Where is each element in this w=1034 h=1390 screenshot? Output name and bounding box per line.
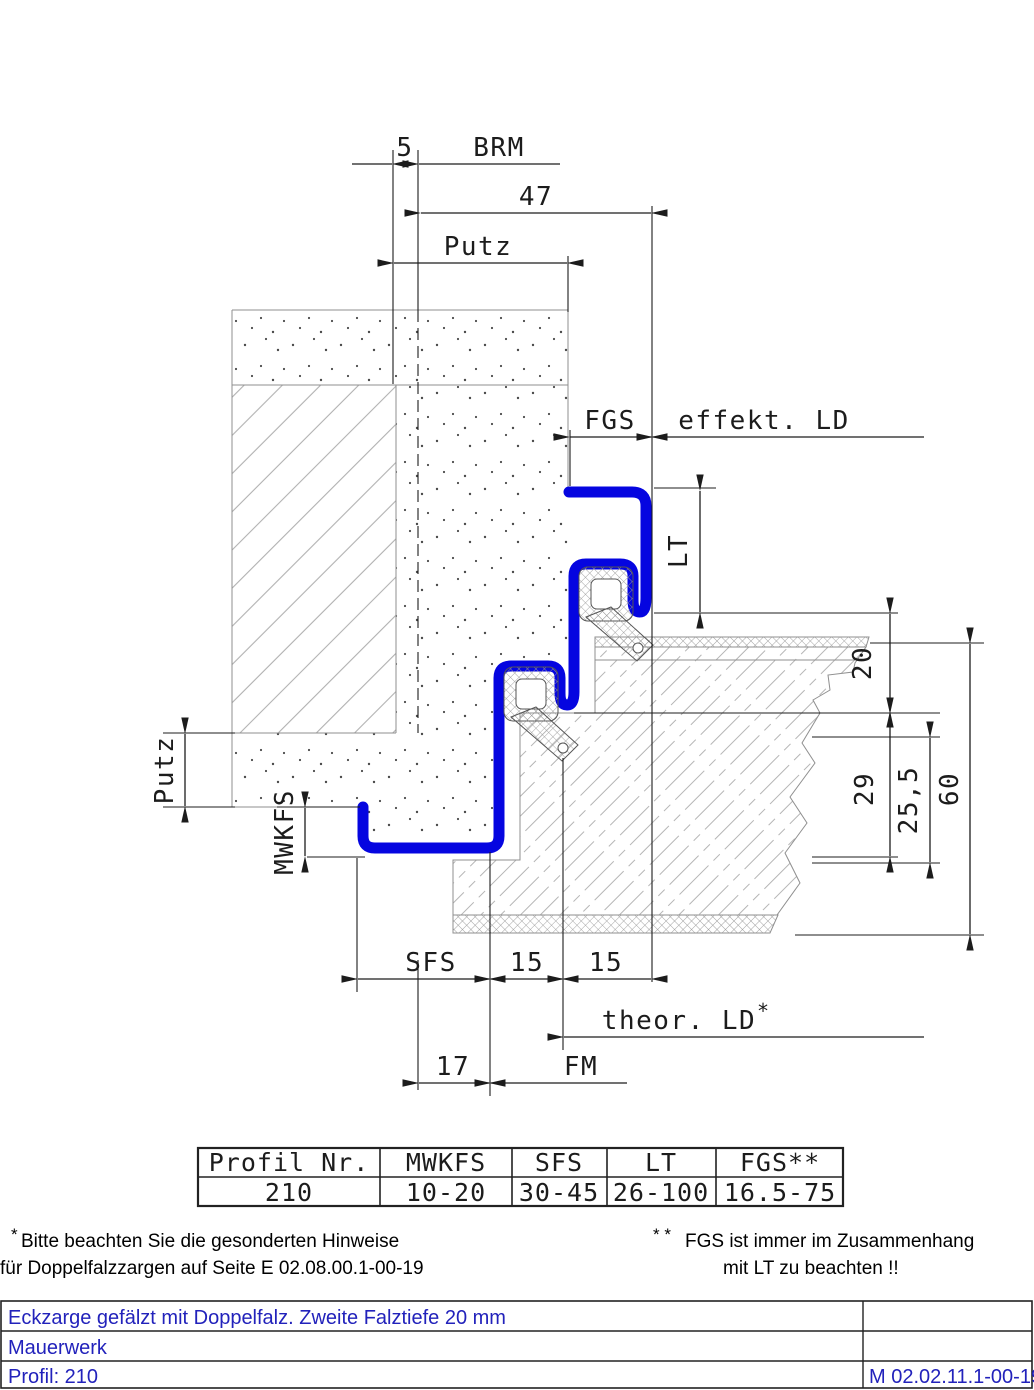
footnote-right-line1: FGS ist immer im Zusammenhang <box>685 1231 974 1252</box>
table-cell-mwkfs: 10-20 <box>406 1178 486 1207</box>
label-putz-left: Putz <box>150 736 180 805</box>
plaster-top-band <box>232 310 568 385</box>
footnote-left-line2: für Doppelfalzzargen auf Seite E 02.08.0… <box>0 1258 424 1279</box>
table-cell-sfs: 30-45 <box>519 1178 599 1207</box>
label-17: 17 <box>436 1052 470 1082</box>
label-lt: LT <box>664 534 694 568</box>
table-cell-lt: 26-100 <box>613 1178 709 1207</box>
door-leaf-bottom-edge-band <box>453 915 778 933</box>
footnote-right-asterisks: * * <box>653 1225 671 1244</box>
label-20: 20 <box>848 646 878 680</box>
label-theor-ld: theor. LD <box>602 1006 756 1036</box>
label-25-5: 25,5 <box>894 766 924 835</box>
label-fgs: FGS <box>584 406 635 436</box>
table-cell-fgs: 16.5-75 <box>724 1178 836 1207</box>
table-cell-profil: 210 <box>265 1178 313 1207</box>
title-row3: Profil: 210 <box>8 1366 98 1388</box>
title-row1: Eckzarge gefälzt mit Doppelfalz. Zweite … <box>8 1307 506 1329</box>
table-header-lt: LT <box>645 1148 677 1177</box>
footnotes: * Bitte beachten Sie die gesonderten Hin… <box>0 1225 974 1279</box>
title-block: Eckzarge gefälzt mit Doppelfalz. Zweite … <box>1 1301 1034 1388</box>
label-29: 29 <box>850 772 880 806</box>
footnote-left-asterisk: * <box>11 1225 18 1244</box>
title-row2: Mauerwerk <box>8 1337 108 1359</box>
profile-table: Profil Nr. MWKFS SFS LT FGS** 210 10-20 … <box>198 1148 843 1207</box>
label-15b: 15 <box>589 948 623 978</box>
label-47: 47 <box>519 182 553 212</box>
masonry-hatch <box>232 385 396 733</box>
label-brm: BRM <box>473 133 524 163</box>
table-header-sfs: SFS <box>535 1148 583 1177</box>
table-header-profil-nr: Profil Nr. <box>209 1148 370 1177</box>
label-sfs: SFS <box>405 948 456 978</box>
table-header-fgs: FGS** <box>740 1148 820 1177</box>
label-60: 60 <box>935 772 965 806</box>
title-doc-number: M 02.02.11.1-00-19 <box>869 1366 1034 1388</box>
label-putz-top: Putz <box>444 232 513 262</box>
drawing-page: 5 BRM 47 Putz FGS effekt. LD LT 20 29 25… <box>0 0 1034 1390</box>
label-theor-ld-star: * <box>757 999 771 1023</box>
label-15a: 15 <box>510 948 544 978</box>
footnote-right-line2: mit LT zu beachten !! <box>723 1258 899 1279</box>
footnote-left-line1: Bitte beachten Sie die gesonderten Hinwe… <box>21 1231 399 1252</box>
label-fm: FM <box>564 1052 598 1082</box>
label-effekt-ld: effekt. LD <box>678 406 850 436</box>
table-header-mwkfs: MWKFS <box>406 1148 486 1177</box>
label-5: 5 <box>396 133 413 163</box>
label-mwkfs: MWKFS <box>270 789 300 875</box>
wall-section <box>232 310 568 845</box>
